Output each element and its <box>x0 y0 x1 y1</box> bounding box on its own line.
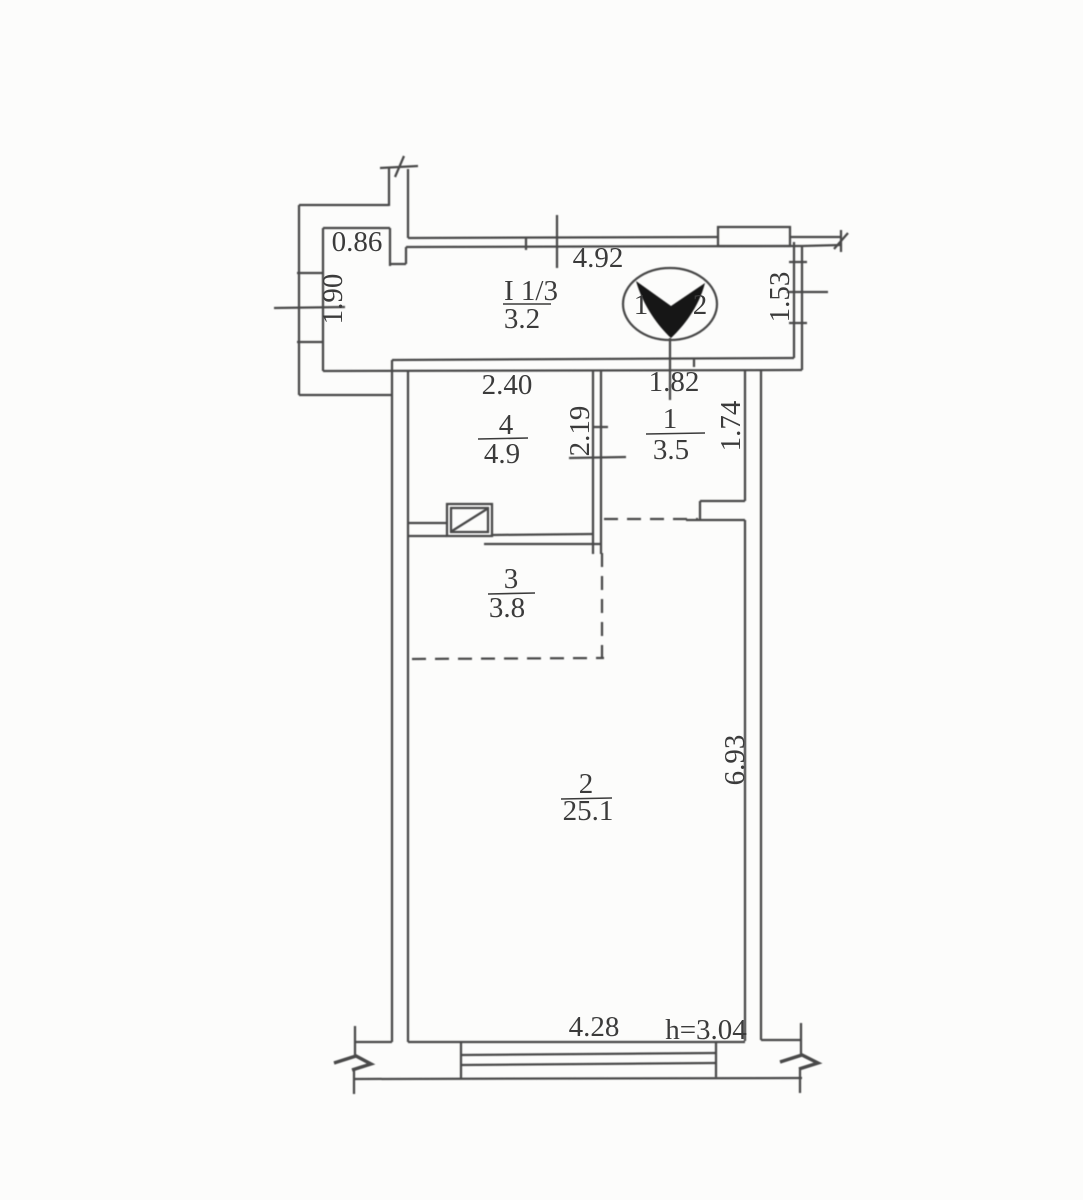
svg-text:4.28: 4.28 <box>569 1011 620 1043</box>
svg-text:4.9: 4.9 <box>484 438 520 470</box>
svg-text:3: 3 <box>504 563 519 595</box>
svg-text:h=3.04: h=3.04 <box>665 1014 747 1046</box>
svg-text:1: 1 <box>634 289 649 321</box>
svg-text:2.40: 2.40 <box>482 369 533 401</box>
svg-text:3.5: 3.5 <box>653 434 689 466</box>
svg-text:1.53: 1.53 <box>764 272 796 323</box>
svg-text:2.19: 2.19 <box>564 406 596 457</box>
svg-text:3.2: 3.2 <box>504 303 540 335</box>
svg-text:6.93: 6.93 <box>719 735 751 786</box>
svg-text:1.74: 1.74 <box>715 400 747 451</box>
svg-text:1.90: 1.90 <box>317 274 349 325</box>
svg-text:4: 4 <box>499 409 514 441</box>
svg-text:2: 2 <box>693 289 708 321</box>
svg-text:1.82: 1.82 <box>649 366 700 398</box>
svg-text:1: 1 <box>663 403 678 435</box>
svg-text:25.1: 25.1 <box>563 795 614 827</box>
svg-text:3.8: 3.8 <box>489 592 525 624</box>
svg-text:0.86: 0.86 <box>332 226 383 258</box>
svg-text:4.92: 4.92 <box>573 242 624 274</box>
